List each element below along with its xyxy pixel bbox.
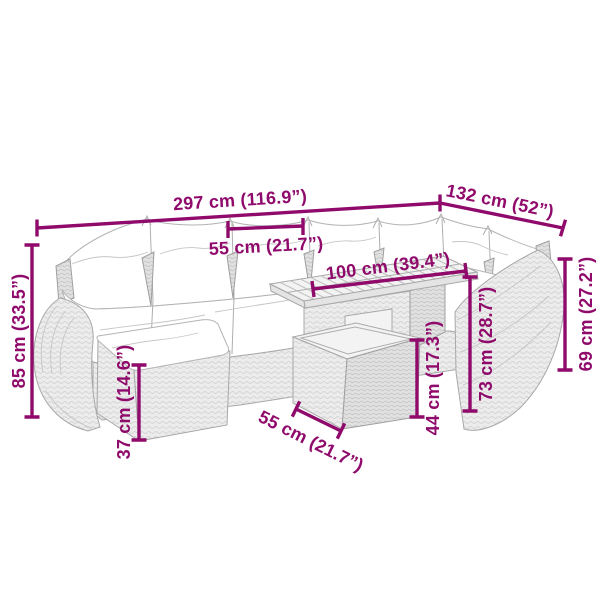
dimension-total-width-label: 297 cm (116.9”) <box>172 186 307 214</box>
dimension-back-height-label: 85 cm (33.5”) <box>9 274 29 389</box>
dimension-table-base-height-label: 44 cm (17.3”) <box>423 321 443 436</box>
dimension-back-height: 85 cm (33.5”) <box>9 245 40 417</box>
diagram-canvas: 297 cm (116.9”) 132 cm (52”) 55 cm (21.7… <box>0 0 600 600</box>
product-dimension-diagram: 297 cm (116.9”) 132 cm (52”) 55 cm (21.7… <box>0 0 600 600</box>
dimension-ottoman-height-label: 37 cm (14.6”) <box>114 345 134 460</box>
dimension-arm-height-label: 69 cm (27.2”) <box>576 257 596 372</box>
dimension-table-height-label: 73 cm (28.7”) <box>476 287 496 402</box>
